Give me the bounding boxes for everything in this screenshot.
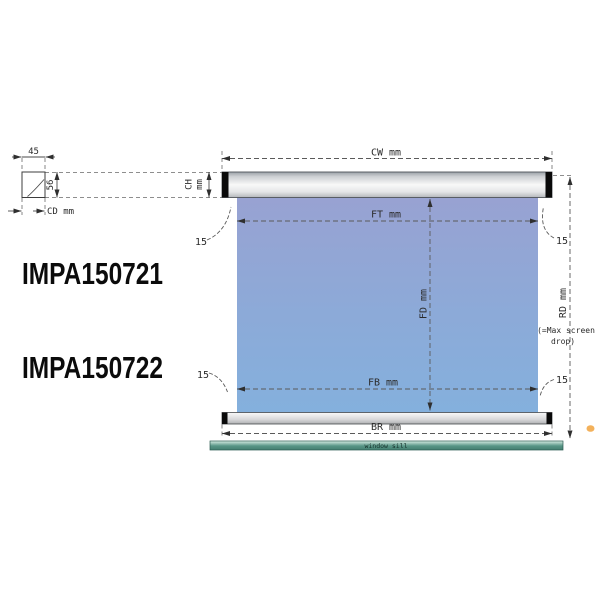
product-code-2: IMPA150722 <box>22 350 163 385</box>
ch-dimension-unit: mm <box>195 179 205 190</box>
product-code-1: IMPA150721 <box>22 256 163 291</box>
edge-gap-label-bottom-right: 15 <box>556 375 568 386</box>
case-height-value-label: 56 <box>46 180 56 191</box>
technical-drawing-page: 45 56 CD mm CH mm CW mm FT mm FB mm FD m… <box>0 0 600 600</box>
fb-dimension-label: FB mm <box>368 378 398 389</box>
casing-cross-section <box>22 172 45 198</box>
rd-note-line1: (=Max screen <box>537 326 595 335</box>
bottom-bar-right-cap <box>547 413 553 425</box>
edge-gap-label-bottom-left: 15 <box>197 370 209 381</box>
case-depth-value-label: 45 <box>28 147 39 157</box>
cd-dimension-label: CD mm <box>47 207 74 217</box>
br-dimension-label: BR mm <box>371 422 401 433</box>
screen-dimension-diagram: 45 56 CD mm CH mm CW mm FT mm FB mm FD m… <box>0 0 600 600</box>
window-sill-label: window sill <box>364 442 407 450</box>
ch-dimension-word: CH <box>185 179 195 190</box>
orange-marker-dot <box>587 425 595 432</box>
screen-casing <box>222 172 552 198</box>
bottom-bar-left-cap <box>222 413 228 425</box>
rd-note-line2: drop) <box>551 337 575 346</box>
rd-dimension-label: RD mm <box>558 288 569 318</box>
edge-gap-label-top-left: 15 <box>195 237 207 248</box>
cw-dimension-label: CW mm <box>371 148 401 159</box>
ft-dimension-label: FT mm <box>371 210 401 221</box>
casing-left-end-cap <box>222 172 229 198</box>
fd-dimension-label: FD mm <box>419 289 430 319</box>
casing-right-end-cap <box>546 172 553 198</box>
edge-gap-label-top-right: 15 <box>556 236 568 247</box>
